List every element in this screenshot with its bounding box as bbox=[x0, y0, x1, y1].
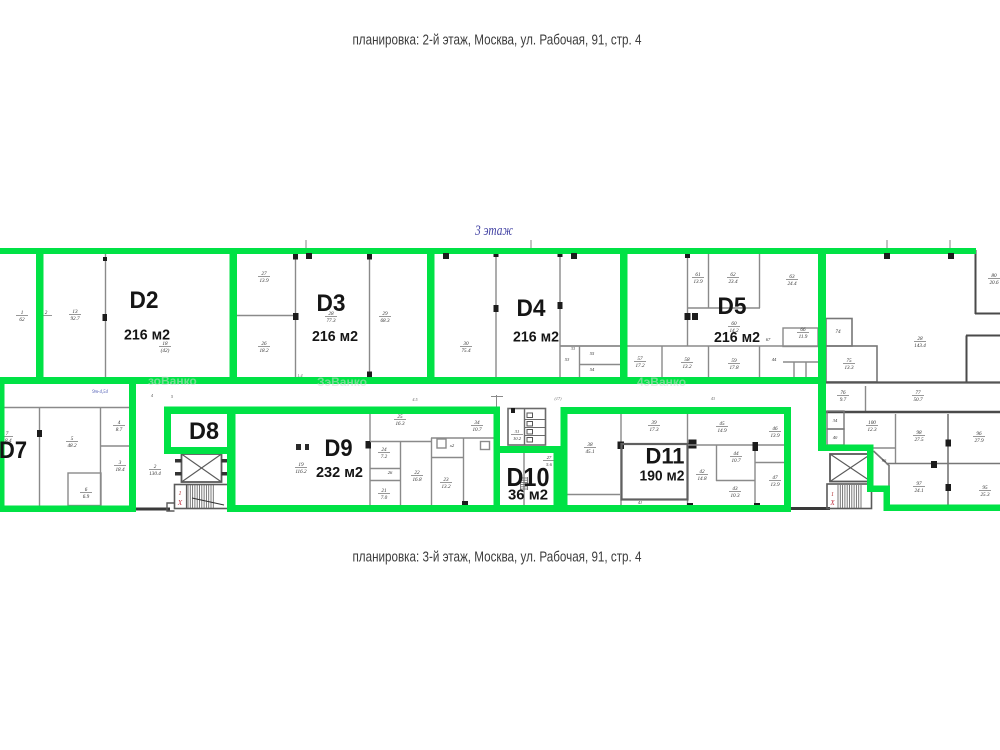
svg-text:13.9: 13.9 bbox=[770, 433, 779, 439]
svg-text:6: 6 bbox=[85, 487, 88, 493]
svg-text:30: 30 bbox=[463, 341, 469, 347]
svg-text:48.2: 48.2 bbox=[67, 442, 76, 449]
svg-text:18.4: 18.4 bbox=[115, 466, 124, 473]
svg-text:(17): (17) bbox=[555, 396, 563, 401]
svg-text:2: 2 bbox=[45, 310, 48, 316]
svg-text:3 этаж: 3 этаж bbox=[474, 223, 513, 239]
svg-text:10.7: 10.7 bbox=[472, 427, 481, 433]
svg-text:216 м2: 216 м2 bbox=[124, 328, 170, 344]
svg-text:43: 43 bbox=[711, 396, 715, 401]
svg-text:76: 76 bbox=[840, 390, 846, 396]
svg-text:77: 77 bbox=[915, 390, 921, 396]
svg-text:77.3: 77.3 bbox=[326, 318, 335, 324]
svg-text:92.7: 92.7 bbox=[70, 316, 79, 322]
svg-text:14.9: 14.9 bbox=[717, 427, 726, 434]
svg-text:59: 59 bbox=[731, 358, 737, 364]
svg-text:47: 47 bbox=[772, 474, 778, 481]
svg-text:12.3: 12.3 bbox=[867, 427, 876, 433]
svg-text:D9: D9 bbox=[325, 435, 353, 462]
svg-text:19: 19 bbox=[298, 462, 304, 468]
svg-text:16.3: 16.3 bbox=[395, 421, 404, 427]
svg-text:7.2: 7.2 bbox=[381, 454, 388, 460]
svg-text:4эВанко: 4эВанко bbox=[637, 375, 686, 389]
svg-text:6.9: 6.9 bbox=[83, 494, 90, 500]
svg-text:22: 22 bbox=[414, 470, 420, 476]
svg-text:7.0: 7.0 bbox=[381, 495, 388, 501]
svg-text:1: 1 bbox=[21, 310, 24, 316]
svg-text:планировка: 2-й этаж, Москва,: планировка: 2-й этаж, Москва, ул. Рабоча… bbox=[353, 32, 642, 49]
svg-text:143.4: 143.4 bbox=[914, 342, 926, 349]
svg-text:45: 45 bbox=[719, 420, 725, 427]
svg-text:63: 63 bbox=[789, 274, 795, 280]
svg-text:34: 34 bbox=[833, 418, 838, 423]
svg-text:38: 38 bbox=[587, 442, 593, 448]
svg-text:D3: D3 bbox=[317, 290, 346, 317]
svg-text:53: 53 bbox=[565, 357, 570, 362]
svg-text:44: 44 bbox=[733, 450, 739, 457]
svg-text:ЗэВанко: ЗэВанко bbox=[317, 375, 367, 389]
svg-text:D7: D7 bbox=[0, 437, 27, 464]
svg-text:25: 25 bbox=[397, 414, 403, 420]
svg-text:216 м2: 216 м2 bbox=[714, 330, 760, 346]
svg-text:4.5: 4.5 bbox=[412, 397, 417, 402]
svg-text:9.7: 9.7 bbox=[840, 397, 847, 403]
svg-text:27: 27 bbox=[261, 271, 267, 277]
svg-text:21: 21 bbox=[381, 488, 387, 494]
svg-text:х2: х2 bbox=[449, 443, 455, 448]
svg-text:10.3: 10.3 bbox=[730, 493, 739, 499]
svg-text:24.4: 24.4 bbox=[787, 280, 796, 287]
svg-text:116.2: 116.2 bbox=[295, 469, 307, 475]
svg-text:D11: D11 bbox=[646, 444, 685, 469]
svg-text:36 м2: 36 м2 bbox=[508, 488, 548, 504]
svg-text:68.3: 68.3 bbox=[380, 318, 389, 324]
svg-text:13.3: 13.3 bbox=[844, 365, 853, 371]
svg-text:232 м2: 232 м2 bbox=[316, 464, 363, 481]
svg-text:75.4: 75.4 bbox=[461, 347, 470, 354]
svg-text:46: 46 bbox=[772, 425, 778, 432]
svg-text:13: 13 bbox=[72, 309, 78, 315]
svg-text:130.4: 130.4 bbox=[149, 470, 161, 477]
svg-text:45.1: 45.1 bbox=[585, 448, 594, 455]
svg-text:20.6: 20.6 bbox=[989, 280, 998, 286]
svg-text:13.9: 13.9 bbox=[693, 279, 702, 285]
svg-text:24: 24 bbox=[381, 446, 387, 453]
svg-text:13.2: 13.2 bbox=[441, 484, 450, 490]
svg-text:23: 23 bbox=[443, 477, 449, 483]
svg-text:1: 1 bbox=[831, 492, 834, 498]
svg-text:24.1: 24.1 bbox=[914, 487, 923, 494]
svg-text:10.2: 10.2 bbox=[513, 436, 522, 441]
svg-text:97: 97 bbox=[916, 481, 922, 487]
svg-text:41: 41 bbox=[638, 500, 642, 505]
svg-text:(42): (42) bbox=[161, 347, 170, 354]
svg-text:17.8: 17.8 bbox=[729, 365, 738, 371]
svg-text:39: 39 bbox=[651, 420, 657, 426]
svg-text:11.9: 11.9 bbox=[799, 334, 808, 340]
svg-text:10.7: 10.7 bbox=[731, 458, 740, 464]
svg-text:27: 27 bbox=[547, 455, 552, 460]
svg-text:75: 75 bbox=[846, 358, 852, 364]
svg-text:1: 1 bbox=[179, 491, 182, 497]
svg-text:33: 33 bbox=[571, 346, 575, 351]
svg-text:D8: D8 bbox=[189, 418, 219, 445]
svg-text:96: 96 bbox=[976, 431, 982, 437]
svg-text:95: 95 bbox=[982, 485, 988, 491]
svg-text:43: 43 bbox=[732, 485, 738, 492]
svg-text:зоВанко: зоВанко bbox=[148, 374, 197, 388]
svg-text:31: 31 bbox=[515, 429, 520, 434]
svg-text:55: 55 bbox=[590, 351, 595, 356]
svg-text:100: 100 bbox=[868, 420, 876, 426]
svg-text:4: 4 bbox=[118, 419, 121, 426]
svg-text:29: 29 bbox=[382, 311, 388, 317]
svg-text:26: 26 bbox=[388, 470, 393, 475]
svg-text:57: 57 bbox=[637, 356, 643, 362]
svg-text:60: 60 bbox=[731, 321, 737, 327]
svg-text:67: 67 bbox=[766, 337, 771, 342]
svg-text:13.2: 13.2 bbox=[682, 364, 691, 370]
svg-text:80: 80 bbox=[991, 273, 997, 279]
svg-text:13.9: 13.9 bbox=[770, 482, 779, 488]
svg-text:8.7: 8.7 bbox=[116, 427, 123, 433]
svg-text:14.8: 14.8 bbox=[697, 475, 706, 482]
svg-text:23.4: 23.4 bbox=[728, 278, 737, 285]
svg-text:планировка: 3-й этаж, Москва,: планировка: 3-й этаж, Москва, ул. Рабоча… bbox=[353, 549, 642, 566]
svg-text:13.9: 13.9 bbox=[259, 278, 268, 284]
svg-text:16.8: 16.8 bbox=[412, 477, 421, 483]
svg-text:26: 26 bbox=[261, 341, 267, 347]
svg-text:25.3: 25.3 bbox=[980, 492, 989, 498]
svg-text:27.9: 27.9 bbox=[974, 438, 983, 444]
svg-text:62: 62 bbox=[19, 317, 25, 323]
svg-text:61: 61 bbox=[695, 272, 701, 278]
svg-text:9т-4,54: 9т-4,54 bbox=[92, 390, 108, 395]
svg-text:66: 66 bbox=[800, 327, 806, 333]
svg-text:X: X bbox=[177, 499, 183, 507]
svg-text:28: 28 bbox=[917, 336, 923, 342]
svg-text:17.3: 17.3 bbox=[649, 427, 658, 433]
svg-text:190 м2: 190 м2 bbox=[640, 468, 685, 485]
svg-text:27.5: 27.5 bbox=[914, 437, 923, 443]
svg-text:54: 54 bbox=[590, 367, 595, 372]
svg-text:5: 5 bbox=[71, 436, 74, 442]
svg-text:44: 44 bbox=[772, 357, 777, 362]
svg-text:X: X bbox=[829, 499, 835, 507]
svg-text:98: 98 bbox=[916, 430, 922, 436]
svg-text:74: 74 bbox=[835, 328, 841, 335]
svg-text:3: 3 bbox=[119, 460, 122, 466]
svg-text:50.7: 50.7 bbox=[913, 397, 922, 403]
svg-text:58: 58 bbox=[684, 357, 690, 363]
svg-text:17.2: 17.2 bbox=[635, 363, 644, 369]
svg-text:40: 40 bbox=[833, 435, 838, 440]
svg-text:D4: D4 bbox=[517, 295, 547, 322]
svg-text:18.2: 18.2 bbox=[259, 348, 268, 354]
svg-text:216 м2: 216 м2 bbox=[513, 330, 559, 346]
svg-text:D5: D5 bbox=[718, 293, 747, 320]
svg-text:216 м2: 216 м2 bbox=[312, 329, 358, 345]
svg-text:34: 34 bbox=[474, 419, 480, 426]
svg-text:D2: D2 bbox=[130, 287, 159, 314]
svg-text:42: 42 bbox=[699, 468, 705, 475]
svg-text:62: 62 bbox=[730, 272, 736, 278]
svg-text:2: 2 bbox=[154, 464, 157, 470]
